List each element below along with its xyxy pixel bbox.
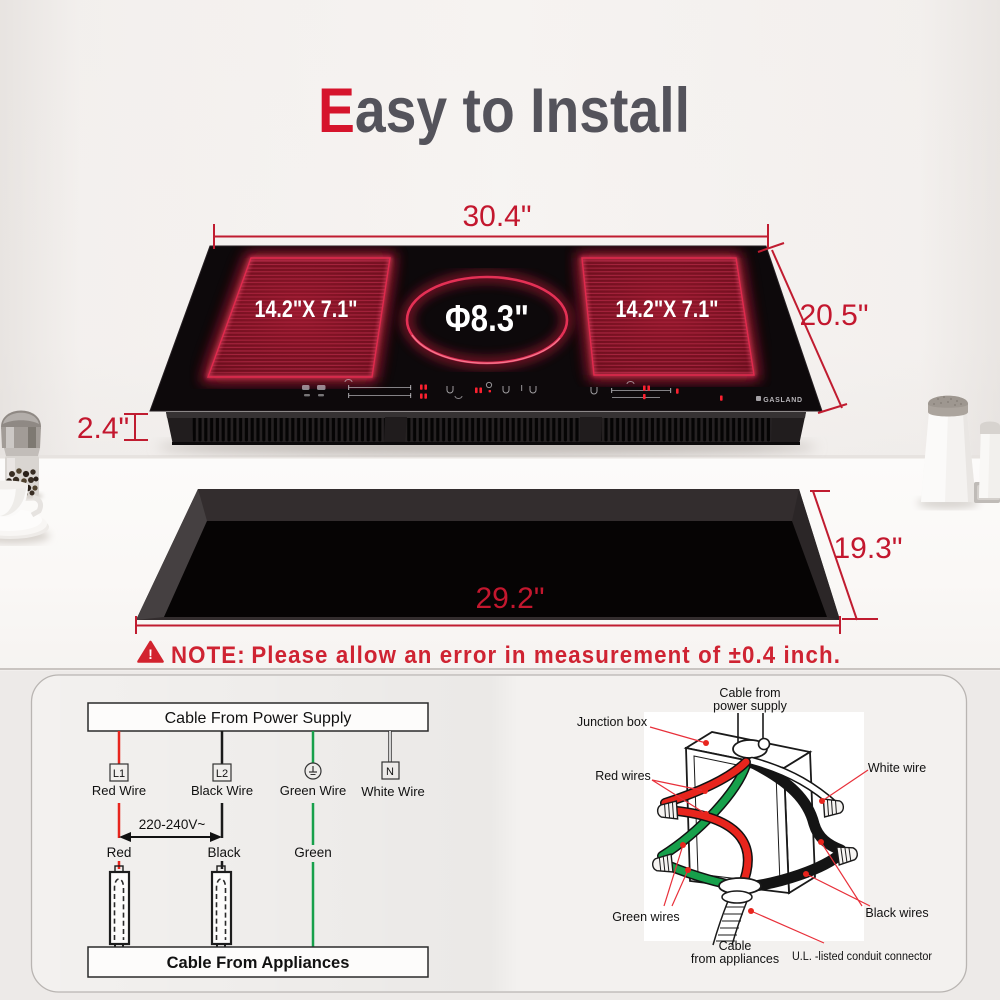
svg-text:Red wires: Red wires [595, 769, 651, 783]
svg-text:Cable from: Cable from [719, 686, 780, 700]
svg-text:White wire: White wire [868, 761, 926, 775]
svg-text:Black: Black [207, 845, 240, 860]
svg-text:Easy to Install: Easy to Install [318, 76, 690, 146]
svg-text:U.L. -listed conduit connector: U.L. -listed conduit connector [792, 951, 932, 963]
svg-text:Black Wire: Black Wire [191, 783, 253, 798]
svg-text:White Wire: White Wire [361, 784, 425, 799]
svg-text:from appliances: from appliances [691, 952, 779, 966]
svg-text:Red: Red [107, 845, 132, 860]
svg-text:NOTE: Please allow an error in: NOTE: Please allow an error in measureme… [171, 642, 841, 669]
svg-text:L1: L1 [113, 768, 125, 780]
svg-text:Cable: Cable [719, 939, 752, 953]
svg-text:power supply: power supply [713, 699, 787, 713]
svg-text:Red Wire: Red Wire [92, 783, 146, 798]
svg-text:14.2"X 7.1": 14.2"X 7.1" [255, 296, 358, 323]
svg-text:2.4": 2.4" [77, 412, 129, 445]
svg-text:Cable From Power Supply: Cable From Power Supply [165, 710, 352, 727]
svg-text:Black wires: Black wires [865, 906, 928, 920]
svg-text:20.5": 20.5" [799, 299, 868, 332]
svg-text:Φ8.3": Φ8.3" [445, 298, 529, 339]
svg-text:Cable From Appliances: Cable From Appliances [167, 954, 350, 972]
svg-text:220-240V~: 220-240V~ [139, 817, 206, 832]
svg-text:N: N [386, 766, 394, 778]
svg-text:L2: L2 [216, 768, 228, 780]
svg-text:19.3": 19.3" [833, 532, 902, 565]
svg-text:29.2": 29.2" [475, 582, 544, 615]
svg-text:Green Wire: Green Wire [280, 783, 346, 798]
svg-text:30.4": 30.4" [462, 200, 531, 233]
svg-text:Green wires: Green wires [612, 910, 679, 924]
svg-text:Green: Green [294, 845, 332, 860]
svg-text:14.2"X 7.1": 14.2"X 7.1" [616, 296, 719, 323]
svg-text:!: ! [148, 647, 153, 662]
svg-text:Junction box: Junction box [577, 715, 648, 729]
svg-text:GASLAND: GASLAND [763, 397, 803, 404]
